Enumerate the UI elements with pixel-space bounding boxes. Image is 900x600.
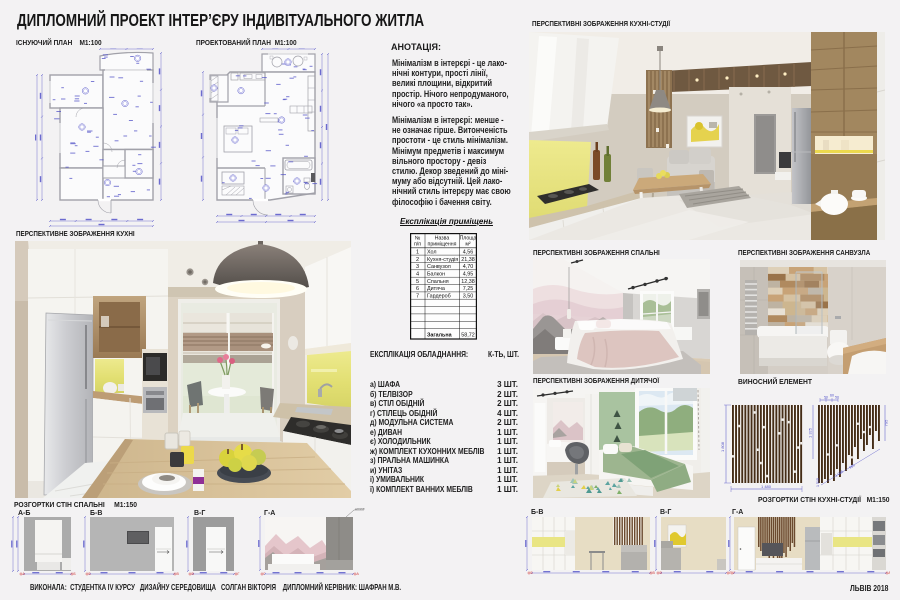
svg-text:Б-В: Б-В (531, 509, 543, 516)
svg-text:1 515: 1 515 (816, 478, 820, 487)
svg-text:5: 5 (416, 279, 419, 285)
svg-text:Г: Г (238, 572, 240, 576)
svg-text:Загальна: Загальна (427, 332, 453, 338)
svg-text:21,38: 21,38 (461, 257, 475, 263)
svg-text:4,95: 4,95 (463, 271, 474, 277)
svg-text:4: 4 (416, 271, 419, 277)
svg-text:В: В (653, 571, 656, 575)
svg-text:Г: Г (730, 571, 732, 575)
svg-text:12,38: 12,38 (461, 279, 475, 285)
svg-text:4,70: 4,70 (463, 264, 474, 270)
svg-text:1 808: 1 808 (720, 441, 725, 452)
svg-text:7,25: 7,25 (463, 286, 474, 292)
svg-text:В-Г: В-Г (194, 510, 205, 517)
svg-text:58,72: 58,72 (461, 332, 475, 338)
svg-text:2: 2 (416, 257, 419, 263)
svg-text:В-Г: В-Г (660, 509, 671, 516)
svg-text:м²: м² (465, 242, 471, 248)
svg-text:Кухня-студія: Кухня-студія (427, 257, 458, 263)
svg-text:60: 60 (830, 394, 834, 398)
svg-text:А-Б: А-Б (18, 510, 30, 517)
svg-text:795: 795 (884, 419, 889, 426)
svg-text:3,50: 3,50 (463, 294, 474, 300)
svg-text:приміщення: приміщення (428, 242, 457, 248)
svg-text:Дзеркало: Дзеркало (355, 508, 365, 511)
svg-text:1: 1 (416, 249, 419, 255)
svg-text:Г-А: Г-А (732, 509, 743, 516)
svg-text:Хол: Хол (427, 249, 437, 255)
svg-text:1 480: 1 480 (761, 484, 772, 489)
svg-text:Дитяча: Дитяча (427, 286, 445, 292)
svg-text:7: 7 (416, 294, 419, 300)
svg-text:А: А (357, 572, 360, 576)
svg-text:4,56: 4,56 (463, 249, 474, 255)
svg-text:Спальня: Спальня (427, 279, 449, 285)
svg-text:А: А (889, 571, 891, 575)
svg-text:Санвузол: Санвузол (427, 264, 451, 270)
svg-text:Б: Б (74, 572, 77, 576)
svg-text:6: 6 (416, 286, 419, 292)
svg-text:1 325: 1 325 (808, 427, 813, 438)
svg-text:Б-В: Б-В (90, 510, 102, 517)
svg-text:Г-А: Г-А (264, 510, 275, 517)
svg-text:п/п: п/п (414, 242, 421, 248)
svg-text:Балкон: Балкон (427, 271, 445, 277)
svg-text:Г: Г (264, 572, 266, 576)
svg-text:3: 3 (416, 264, 419, 270)
svg-text:В: В (177, 572, 180, 576)
svg-text:Г: Г (734, 571, 736, 575)
svg-text:50: 50 (835, 396, 839, 400)
svg-text:Гардероб: Гардероб (427, 294, 451, 300)
